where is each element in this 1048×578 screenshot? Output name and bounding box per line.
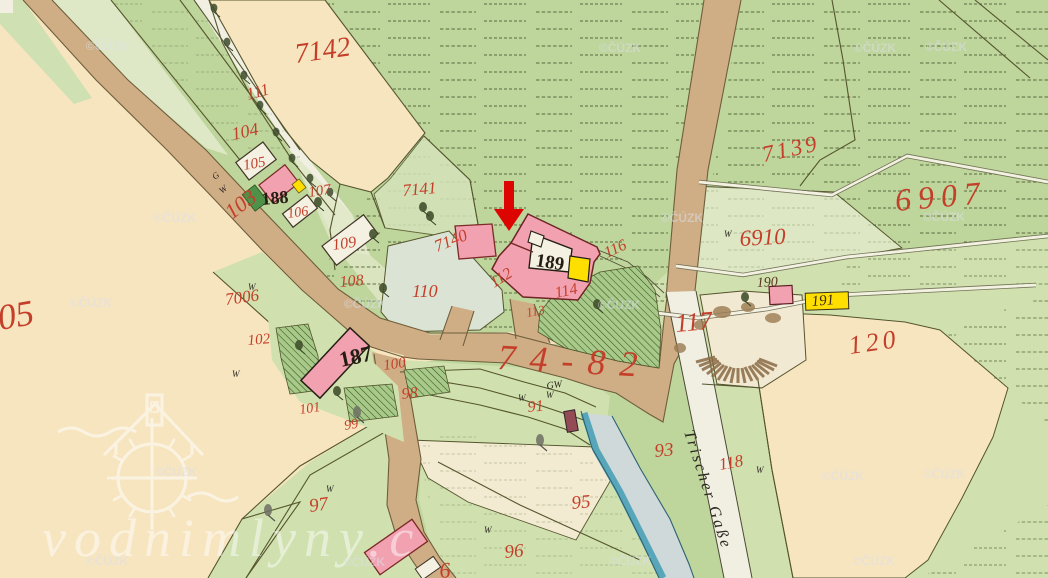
svg-text:©ČÚZK: ©ČÚZK xyxy=(598,297,641,312)
svg-text:©ČÚZK: ©ČÚZK xyxy=(86,553,129,568)
svg-text:110: 110 xyxy=(412,281,438,301)
svg-text:91: 91 xyxy=(527,398,544,416)
svg-text:©ČÚZK: ©ČÚZK xyxy=(86,38,129,53)
svg-text:©ČÚZK: ©ČÚZK xyxy=(70,295,113,310)
svg-text:©ČÚZK: ©ČÚZK xyxy=(599,40,642,55)
svg-text:188: 188 xyxy=(261,187,290,209)
svg-text:6910: 6910 xyxy=(739,224,787,251)
svg-text:74-82: 74-82 xyxy=(497,337,653,385)
svg-text:©ČÚZK: ©ČÚZK xyxy=(155,464,198,479)
svg-text:191: 191 xyxy=(811,292,835,310)
svg-text:©ČÚZK: ©ČÚZK xyxy=(923,209,966,224)
svg-text:98: 98 xyxy=(401,385,418,403)
svg-text:100: 100 xyxy=(382,355,407,374)
svg-text:107: 107 xyxy=(307,182,333,201)
svg-text:96: 96 xyxy=(504,540,525,563)
svg-text:117: 117 xyxy=(674,306,714,338)
svg-text:©ČÚZK: ©ČÚZK xyxy=(344,296,387,311)
svg-text:©ČÚZK: ©ČÚZK xyxy=(154,210,197,225)
svg-text:©ČÚZK: ©ČÚZK xyxy=(343,554,386,569)
svg-text:©ČÚZK: ©ČÚZK xyxy=(925,39,968,54)
svg-text:©ČÚZK: ©ČÚZK xyxy=(854,40,897,55)
svg-text:99: 99 xyxy=(343,417,359,434)
svg-text:102: 102 xyxy=(247,331,271,349)
svg-text:95: 95 xyxy=(571,491,592,514)
svg-text:190: 190 xyxy=(756,275,778,291)
svg-text:106: 106 xyxy=(286,204,309,222)
svg-text:7141: 7141 xyxy=(402,178,438,200)
svg-text:©ČÚZK: ©ČÚZK xyxy=(822,468,865,483)
svg-text:©ČÚZK: ©ČÚZK xyxy=(853,553,896,568)
svg-text:109: 109 xyxy=(331,234,357,254)
svg-text:©ČÚZK: ©ČÚZK xyxy=(661,210,704,225)
svg-text:©ČÚZK: ©ČÚZK xyxy=(609,553,652,568)
svg-text:6: 6 xyxy=(438,557,451,578)
svg-text:101: 101 xyxy=(298,400,321,418)
svg-text:93: 93 xyxy=(654,439,675,462)
svg-text:108: 108 xyxy=(339,272,364,291)
svg-text:©ČÚZK: ©ČÚZK xyxy=(923,466,966,481)
svg-text:189: 189 xyxy=(534,250,565,275)
